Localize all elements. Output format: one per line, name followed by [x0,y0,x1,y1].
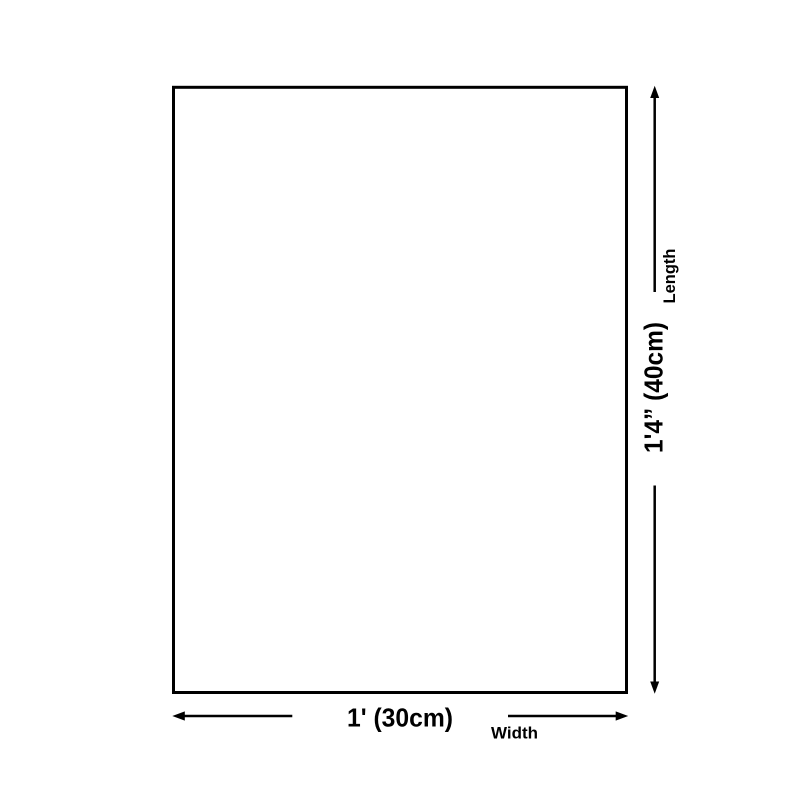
svg-text:Width: Width [491,724,538,743]
svg-text:1'4” (40cm): 1'4” (40cm) [639,322,669,453]
svg-text:1' (30cm): 1' (30cm) [347,703,453,733]
svg-text:Length: Length [660,249,679,304]
